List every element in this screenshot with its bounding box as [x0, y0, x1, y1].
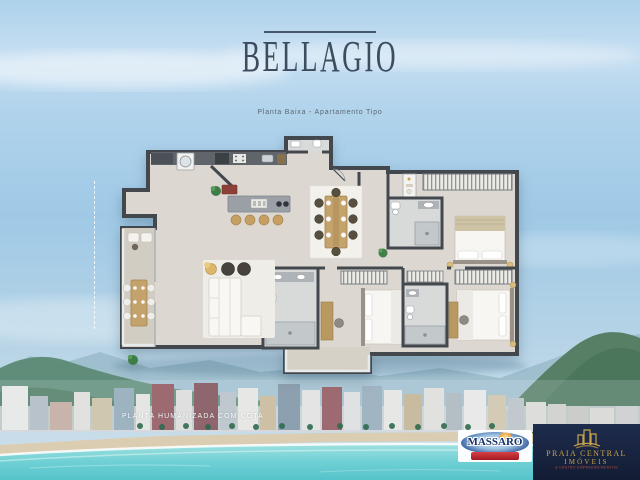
massaro-banner: construtora	[471, 452, 519, 460]
bedroom-3	[449, 270, 516, 347]
floor-plan	[115, 132, 525, 377]
title-block: BELLAGIO Planta Baixa - Apartamento Tipo	[0, 31, 640, 116]
flyer-canvas: BELLAGIO Planta Baixa - Apartamento Tipo	[0, 0, 640, 480]
lower-terrace	[285, 347, 370, 372]
powder-room	[286, 140, 331, 152]
project-title: BELLAGIO	[242, 35, 398, 79]
dining-area	[310, 186, 362, 258]
praia-central-name: PRAIA CENTRAL	[533, 449, 640, 458]
praia-central-subline: & CASTRO EMPREENDIMENTOS	[553, 466, 619, 470]
massaro-logo: MASSARO construtora	[458, 430, 532, 462]
balcony	[122, 228, 155, 365]
massaro-name: MASSARO	[458, 436, 532, 448]
living-room	[203, 260, 275, 338]
praia-central-imoveis: IMÓVEIS	[533, 458, 640, 466]
plan-caption: PLANTA HUMANIZADA COM COTA	[122, 413, 264, 420]
bathroom-small	[403, 271, 447, 346]
plan-subtitle: Planta Baixa - Apartamento Tipo	[0, 109, 640, 116]
praia-central-logo: PRAIA CENTRAL IMÓVEIS & CASTRO EMPREENDI…	[533, 424, 640, 480]
buildings-icon	[570, 427, 604, 449]
dimension-dash-line	[94, 181, 95, 329]
